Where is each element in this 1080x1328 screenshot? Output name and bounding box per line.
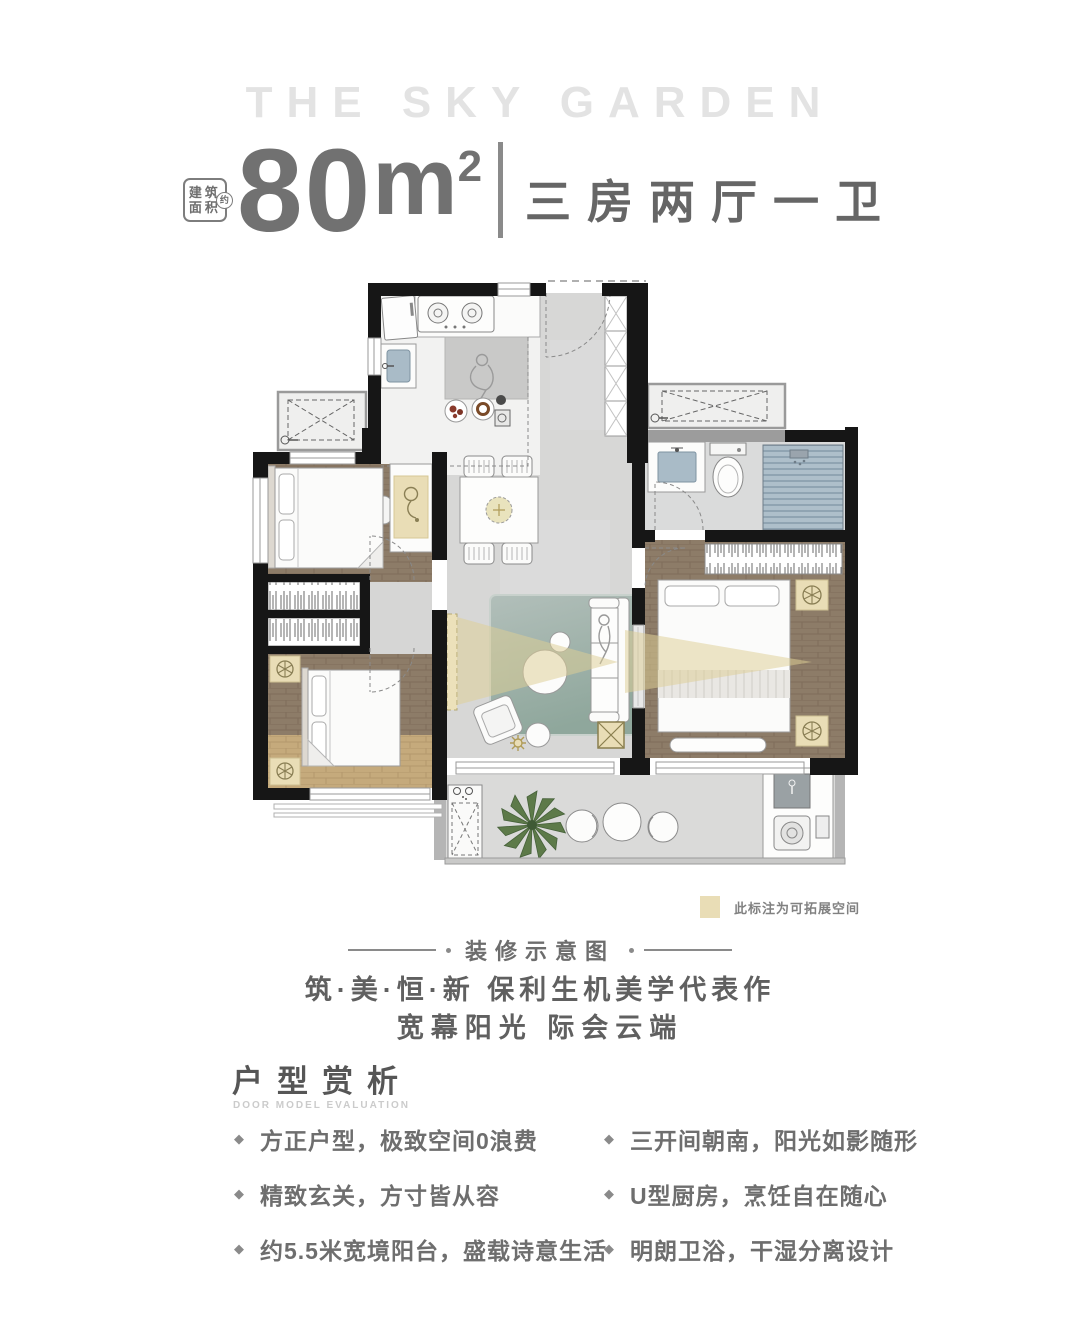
ac-platform-left (278, 392, 366, 450)
bullet-item: ◆ 方正户型，极致空间0浪费 (234, 1124, 594, 1153)
diamond-bullet-icon: ◆ (234, 1124, 244, 1153)
toilet (710, 443, 746, 497)
diamond-bullet-icon: ◆ (604, 1124, 614, 1153)
analysis-title: 户型赏析 (232, 1056, 412, 1101)
bullet-item: ◆ U型厨房，烹饪自在随心 (604, 1179, 984, 1208)
slogan-line-1: 筑·美·恒·新 保利生机美学代表作 (0, 968, 1080, 1007)
bath-sink (648, 442, 705, 492)
diamond-bullet-icon: ◆ (604, 1179, 614, 1208)
badge-approx-circle: 约 (216, 192, 233, 209)
bed-1 (268, 466, 383, 568)
bullet-text: 明朗卫浴，干湿分离设计 (630, 1232, 894, 1266)
vertical-divider (498, 142, 503, 238)
bullet-item: ◆ 精致玄关，方寸皆从容 (234, 1179, 594, 1208)
area-value: 80m2 (237, 143, 482, 240)
band-title: 装修示意图 (465, 934, 615, 966)
floor-plan (250, 280, 870, 880)
entry-cabinet (605, 296, 627, 436)
area-badge: 建筑 面积 约 (183, 178, 227, 222)
kitchen-sink (381, 344, 416, 388)
bullet-text: 精致玄关，方寸皆从容 (260, 1177, 500, 1211)
nightstand (270, 656, 300, 682)
floor-plant (510, 735, 526, 751)
diamond-bullet-icon: ◆ (234, 1234, 244, 1263)
area-row: 建筑 面积 约 80m2 三房两厅一卫 (0, 140, 1080, 240)
expandable-side-table (598, 722, 624, 748)
analysis-subtitle: DOOR MODEL EVALUATION (233, 1100, 410, 1111)
bullet-text: 三开间朝南，阳光如影随形 (630, 1122, 918, 1156)
room-layout-text: 三房两厅一卫 (525, 166, 897, 232)
bullet-item: ◆ 约5.5米宽境阳台，盛载诗意生活 (234, 1234, 594, 1263)
brand-title: THE SKY GARDEN (0, 78, 1080, 128)
stove (418, 296, 494, 332)
bullet-list-left: ◆ 方正户型，极致空间0浪费 ◆ 精致玄关，方寸皆从容 ◆ 约5.5米宽境阳台，… (234, 1124, 594, 1263)
area-unit: m (372, 143, 457, 222)
nightstand (796, 580, 828, 610)
diamond-bullet-icon: ◆ (234, 1179, 244, 1208)
bullet-list-right: ◆ 三开间朝南，阳光如影随形 ◆ U型厨房，烹饪自在随心 ◆ 明朗卫浴，干湿分离… (604, 1124, 984, 1263)
bedroom-1 (268, 464, 432, 568)
nightstand (270, 758, 300, 785)
caption-band: 装修示意图 (0, 934, 1080, 966)
bullet-item: ◆ 三开间朝南，阳光如影随形 (604, 1124, 984, 1153)
fridge (381, 296, 418, 341)
bullet-item: ◆ 明朗卫浴，干湿分离设计 (604, 1234, 984, 1263)
band-dot-left (446, 948, 451, 953)
area-unit-sup: 2 (458, 145, 482, 189)
master-wardrobe (705, 544, 842, 574)
bed-bench (670, 738, 766, 752)
bullet-text: 约5.5米宽境阳台，盛载诗意生活 (260, 1232, 607, 1266)
bullet-text: 方正户型，极致空间0浪费 (260, 1122, 538, 1156)
band-line-right (644, 949, 732, 951)
side-pouf (526, 723, 550, 747)
expandable-screen-strip (447, 614, 457, 710)
diamond-bullet-icon: ◆ (604, 1234, 614, 1263)
legend-label: 此标注为可拓展空间 (734, 898, 860, 917)
bed-2 (302, 668, 400, 766)
band-dot-right (629, 948, 634, 953)
balcony-cabinet (448, 785, 482, 859)
laundry-area (763, 768, 833, 860)
ac-platform-right (648, 384, 785, 428)
bullet-text: U型厨房，烹饪自在随心 (630, 1177, 888, 1211)
desk (390, 464, 432, 552)
plan-legend: 此标注为可拓展空间 (700, 896, 860, 918)
area-number: 80 (237, 143, 372, 240)
band-line-left (348, 949, 436, 951)
legend-swatch (700, 896, 720, 918)
shower (763, 445, 843, 530)
slogan-line-2: 宽幕阳光 际会云端 (0, 1006, 1080, 1045)
nightstand (796, 716, 828, 746)
floor-plan-svg (250, 280, 870, 880)
